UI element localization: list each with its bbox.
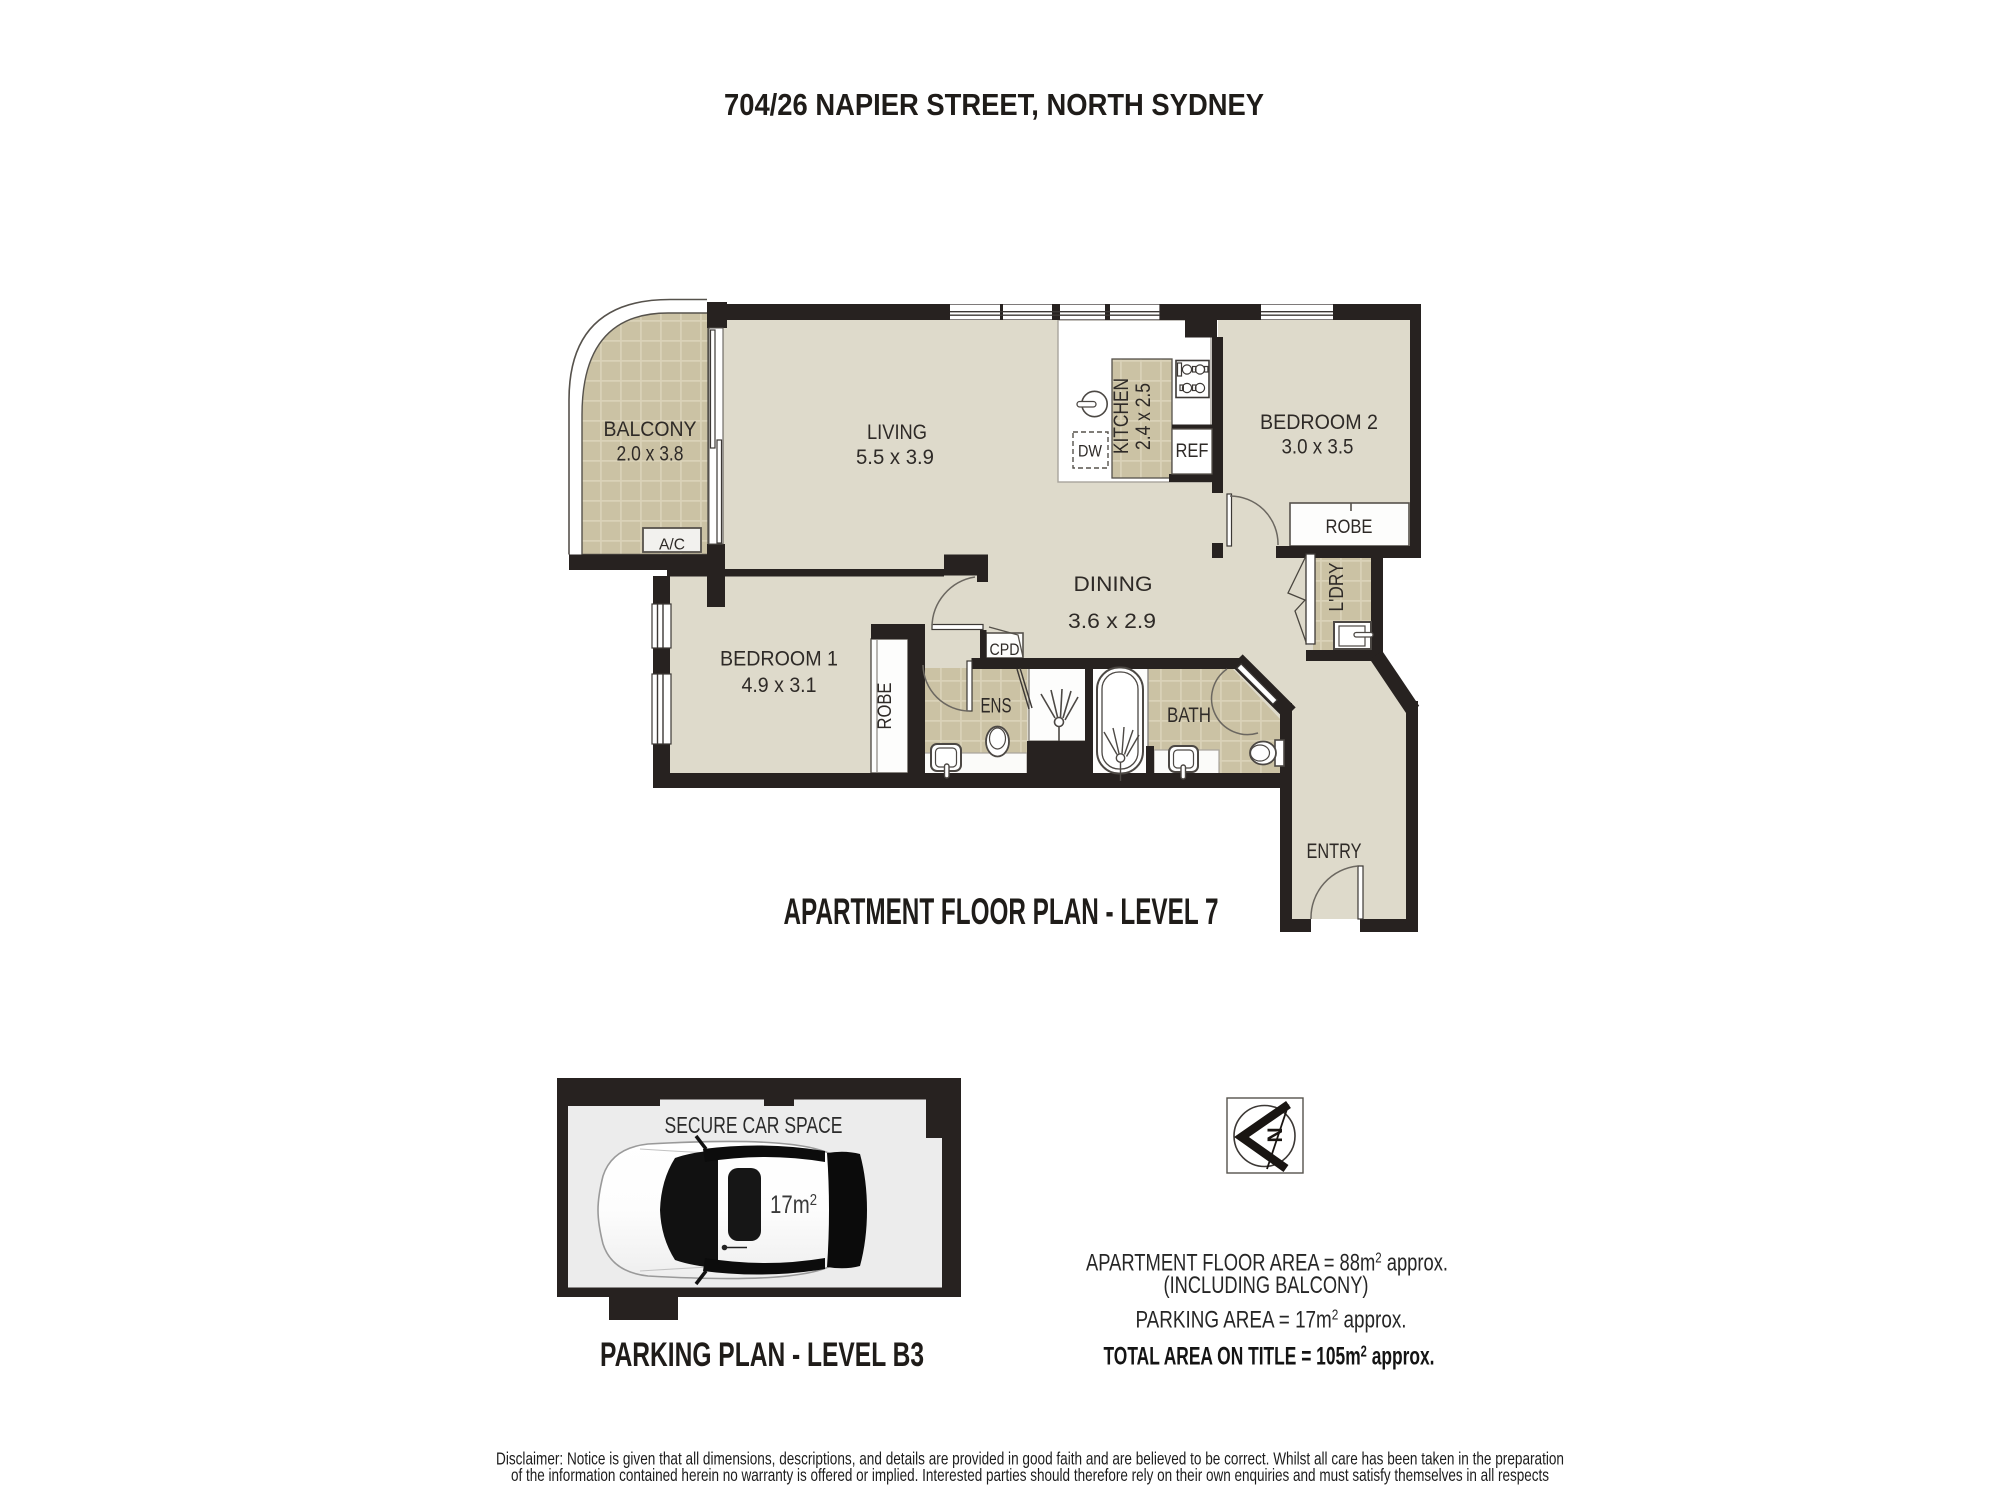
svg-text:APARTMENT FLOOR PLAN - LEVEL 7: APARTMENT FLOOR PLAN - LEVEL 7 [784,891,1219,932]
svg-text:SECURE CAR SPACE: SECURE CAR SPACE [665,1112,843,1138]
svg-text:DW: DW [1078,442,1102,461]
svg-text:of the information contained h: of the information contained herein no w… [511,1465,1549,1485]
svg-text:A/C: A/C [659,537,685,554]
svg-text:4.9 x 3.1: 4.9 x 3.1 [742,673,817,697]
svg-text:TOTAL AREA ON TITLE = 105m2 ap: TOTAL AREA ON TITLE = 105m2 approx. [1104,1343,1435,1371]
svg-text:704/26 NAPIER STREET, NORTH SY: 704/26 NAPIER STREET, NORTH SYDNEY [724,87,1264,122]
svg-text:BATH: BATH [1167,703,1211,727]
svg-text:3.6 x 2.9: 3.6 x 2.9 [1068,609,1156,633]
svg-text:LIVING: LIVING [867,420,927,444]
svg-text:PARKING AREA = 17m2 approx.: PARKING AREA = 17m2 approx. [1136,1307,1407,1334]
svg-text:ENTRY: ENTRY [1307,839,1362,863]
svg-text:5.5 x 3.9: 5.5 x 3.9 [856,445,934,469]
svg-text:2.0 x 3.8: 2.0 x 3.8 [617,442,684,466]
svg-text:ROBE: ROBE [875,683,896,730]
svg-text:BEDROOM 1: BEDROOM 1 [720,647,838,671]
svg-text:(INCLUDING BALCONY): (INCLUDING BALCONY) [1164,1272,1369,1299]
svg-text:REF: REF [1176,441,1209,462]
svg-text:2.4 x 2.5: 2.4 x 2.5 [1131,383,1155,450]
svg-text:3.0 x 3.5: 3.0 x 3.5 [1282,435,1354,459]
svg-text:L'DRY: L'DRY [1326,563,1348,612]
svg-text:ENS: ENS [981,694,1012,718]
svg-text:N: N [1262,1127,1285,1142]
svg-text:KITCHEN: KITCHEN [1109,378,1133,454]
svg-text:CPD: CPD [990,640,1020,659]
svg-text:BALCONY: BALCONY [604,417,697,441]
svg-text:ROBE: ROBE [1326,517,1373,538]
svg-text:DINING: DINING [1074,572,1153,596]
svg-text:BEDROOM 2: BEDROOM 2 [1260,410,1378,434]
svg-text:PARKING PLAN - LEVEL B3: PARKING PLAN - LEVEL B3 [600,1336,924,1374]
